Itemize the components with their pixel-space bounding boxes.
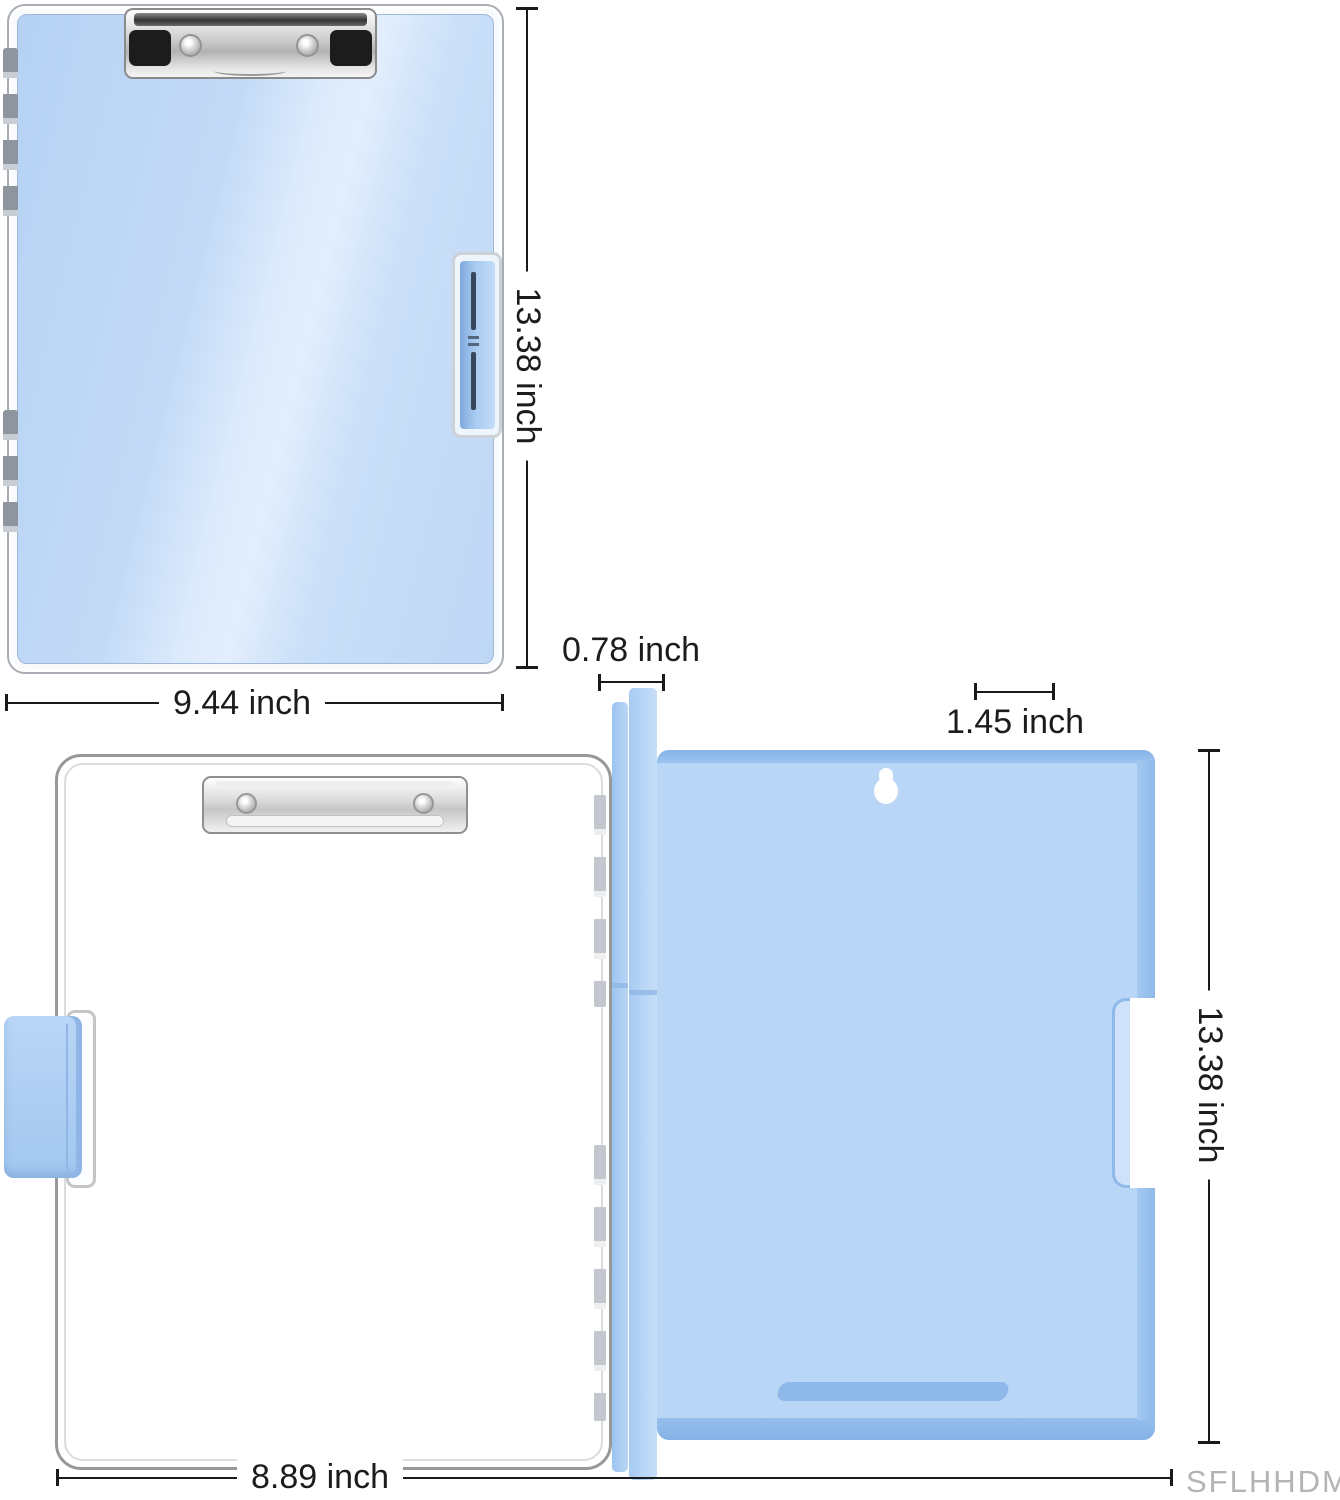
hinge-strip	[3, 410, 18, 544]
open-height-label: 13.38 inch	[1188, 991, 1232, 1180]
product-dimension-image: 13.38 inch 9.44 inch 1.45 inch 0.78 inch	[0, 0, 1340, 1500]
hinge-strip	[594, 1145, 606, 1421]
hinge-strip	[594, 795, 606, 1007]
metal-clip-spring-bar	[134, 13, 367, 26]
open-latch-tab	[4, 1016, 82, 1178]
latch-slit	[471, 352, 476, 410]
latch-slit	[471, 272, 476, 330]
clip-corner-pad	[330, 30, 372, 66]
open-clipboard-view	[0, 680, 1180, 1490]
latch-grip	[468, 336, 479, 346]
closed-height-label: 13.38 inch	[506, 272, 550, 461]
watermark: SFLHHDM	[1186, 1464, 1340, 1500]
back-panel-slot	[776, 1382, 1011, 1401]
dimension-tick	[56, 1469, 59, 1486]
clip-lever	[214, 66, 286, 76]
dimension-tick	[1198, 749, 1220, 752]
back-panel	[657, 750, 1155, 1440]
open-width-label: 8.89 inch	[237, 1456, 403, 1498]
closed-width-label: 9.44 inch	[159, 682, 325, 724]
clip-corner-pad	[129, 30, 171, 66]
dimension-tick	[516, 7, 538, 10]
back-panel-bottom-edge	[657, 1418, 1155, 1440]
hinge-strip	[3, 48, 18, 220]
clip-rivet	[179, 34, 202, 57]
side-width-label: 1.45 inch	[932, 701, 1098, 743]
dimension-tick	[1170, 1469, 1173, 1486]
spine-bar	[612, 702, 628, 1472]
back-panel-top-edge	[657, 750, 1155, 763]
open-front-panel	[55, 754, 612, 1470]
closed-clipboard-face	[17, 14, 494, 664]
spine-seam	[629, 990, 657, 995]
spine-bar	[629, 688, 657, 1480]
hang-hole	[874, 778, 898, 804]
open-metal-clip	[202, 776, 468, 834]
spine-thickness-label: 0.78 inch	[548, 629, 714, 671]
side-view	[930, 0, 1070, 680]
clip-rivet	[236, 793, 257, 814]
dimension-line	[57, 1477, 1172, 1479]
back-panel-latch-notch	[1112, 998, 1162, 1188]
spine-seam	[612, 983, 628, 988]
open-width-dimension	[0, 1460, 1200, 1496]
dimension-tick	[516, 666, 538, 669]
clip-rivet	[296, 34, 319, 57]
closed-clipboard-view	[0, 0, 540, 740]
metal-clip	[124, 8, 377, 79]
dimension-tick	[1198, 1441, 1220, 1444]
clip-rivet	[413, 793, 434, 814]
